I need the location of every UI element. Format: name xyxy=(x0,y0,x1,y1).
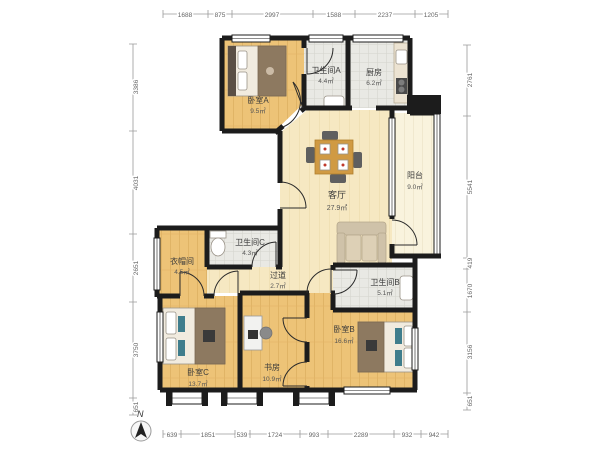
dimension-label: 1588 xyxy=(327,12,342,19)
toilet-icon xyxy=(210,231,226,256)
dimension-label: 1205 xyxy=(424,12,439,19)
floorplan-svg: 卧室A 9.5㎡ 卫生间A 4.4㎡ 厨房 6.2㎡ 客厅 27.9㎡ 阳台 9… xyxy=(0,0,600,450)
bed-icon xyxy=(163,308,225,364)
dimension-label: 993 xyxy=(309,432,320,439)
dimension-label: 1688 xyxy=(178,12,193,19)
room-area: 2.7㎡ xyxy=(270,281,286,290)
dimension-right: 2761 5541 419 1670 3156 651 xyxy=(463,45,474,410)
bay-window xyxy=(166,390,208,406)
room-label: 阳台 xyxy=(407,170,423,180)
room-label: 客厅 xyxy=(328,189,346,200)
wall-block xyxy=(407,95,441,114)
room-area: 4.3㎡ xyxy=(242,248,258,257)
room-label: 卫生间C xyxy=(235,237,265,247)
dimension-label: 1670 xyxy=(467,283,474,298)
dimension-label: 5541 xyxy=(467,179,474,194)
room-label: 厨房 xyxy=(366,67,382,77)
dimension-top: 1688 875 2997 1588 2237 1205 xyxy=(163,10,448,19)
room-area: 16.6㎡ xyxy=(334,336,354,345)
room-label: 卧室C xyxy=(187,367,209,377)
room-area: 4.4㎡ xyxy=(318,76,334,85)
compass-label: N xyxy=(137,409,144,419)
dimension-label: 3750 xyxy=(133,342,140,357)
window xyxy=(344,387,390,394)
room-label: 卫生间B xyxy=(370,277,399,287)
dimension-label: 539 xyxy=(237,432,248,439)
room-area: 5.1㎡ xyxy=(377,288,393,297)
window xyxy=(232,35,270,42)
dimension-bottom: 639 1851 539 1724 993 2289 932 942 xyxy=(163,430,448,439)
window xyxy=(412,328,418,370)
dimension-label: 2997 xyxy=(265,12,280,19)
floorplan-image: 卧室A 9.5㎡ 卫生间A 4.4㎡ 厨房 6.2㎡ 客厅 27.9㎡ 阳台 9… xyxy=(0,0,600,450)
washbasin-icon xyxy=(400,276,413,300)
window xyxy=(353,35,403,42)
dimension-label: 875 xyxy=(215,12,226,19)
dimension-label: 2237 xyxy=(378,12,393,19)
room-label: 卧室A xyxy=(247,95,269,105)
room-area: 9.0㎡ xyxy=(407,182,423,191)
dimension-left: 3386 4031 2651 3750 651 xyxy=(129,44,140,415)
dimension-label: 4031 xyxy=(133,175,140,190)
window xyxy=(157,312,163,362)
dimension-label: 2289 xyxy=(354,432,369,439)
room-label: 过道 xyxy=(270,270,286,280)
dimension-label: 1851 xyxy=(201,432,216,439)
window xyxy=(154,238,160,290)
room-area: 6.2㎡ xyxy=(366,78,382,87)
dimension-label: 419 xyxy=(467,257,474,268)
room-area: 27.9㎡ xyxy=(327,204,348,212)
bed-icon xyxy=(358,322,415,372)
room-label: 书房 xyxy=(264,362,280,372)
bay-window xyxy=(293,390,335,406)
room-area: 4.5㎡ xyxy=(174,267,190,276)
dimension-label: 1724 xyxy=(268,432,283,439)
window xyxy=(389,118,395,216)
sink-icon xyxy=(396,50,407,64)
dimension-label: 2761 xyxy=(467,72,474,87)
room-label: 卫生间A xyxy=(311,65,341,75)
dimension-label: 932 xyxy=(402,432,413,439)
window xyxy=(434,114,440,254)
dimension-label: 639 xyxy=(167,432,178,439)
room-area: 13.7㎡ xyxy=(188,379,208,388)
dimension-label: 3156 xyxy=(467,344,474,359)
room-area: 10.9㎡ xyxy=(262,374,282,383)
dimension-label: 2651 xyxy=(133,260,140,275)
room-label: 卧室B xyxy=(333,324,354,334)
bed-icon xyxy=(228,46,286,96)
window xyxy=(309,35,343,42)
dimension-label: 651 xyxy=(467,395,474,406)
dimension-label: 3386 xyxy=(133,79,140,94)
north-compass-icon: N xyxy=(131,409,151,441)
room-area: 9.5㎡ xyxy=(250,106,266,115)
kitchen-counter-icon xyxy=(394,43,409,103)
room-label: 衣帽间 xyxy=(170,256,194,266)
dimension-label: 942 xyxy=(429,432,440,439)
bay-window xyxy=(221,390,263,406)
